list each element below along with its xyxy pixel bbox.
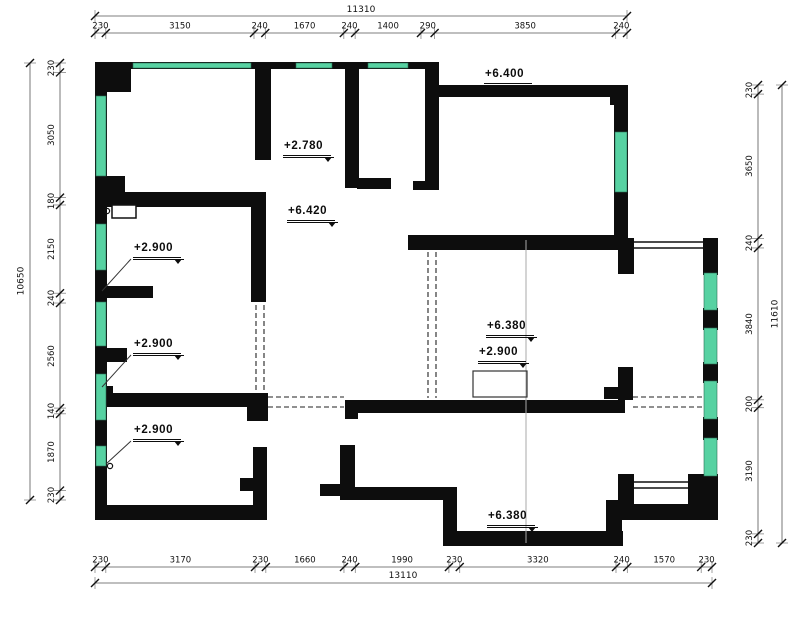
wall-segment (618, 504, 718, 520)
platform-outline (473, 371, 527, 397)
wall-segment (703, 308, 718, 330)
wall-segment (408, 235, 627, 250)
wall-segment (430, 85, 628, 97)
window-segment (704, 328, 717, 364)
leader-line (106, 441, 131, 464)
wall-segment (606, 500, 622, 533)
wall-segment (604, 387, 619, 399)
wall-segment (253, 447, 267, 520)
wall-segment (251, 192, 266, 302)
dimension-lines-group (24, 10, 788, 589)
wall-segment (345, 407, 358, 419)
floor-plan: 11310 13110 10650 11610 2303150240167024… (0, 0, 800, 622)
wall-segment (443, 487, 457, 537)
window-segment (96, 224, 106, 270)
wall-segment (345, 62, 359, 188)
wall-segment (443, 531, 623, 546)
wall-segment (357, 178, 391, 189)
wall-segment (95, 393, 268, 407)
floor-plan-canvas (0, 0, 800, 622)
wall-segment (703, 362, 718, 383)
wall-segment (95, 286, 153, 298)
wall-segment (95, 505, 267, 520)
fixture-circle (107, 463, 112, 468)
wall-segment (703, 238, 718, 275)
window-segment (96, 374, 106, 420)
wall-segment (688, 474, 718, 506)
wall-segment (425, 62, 439, 190)
window-segment (704, 381, 717, 419)
wall-segment (703, 417, 718, 440)
wall-segment (340, 487, 456, 500)
window-segment (704, 438, 717, 476)
wall-segment (255, 62, 271, 160)
fixture-box (112, 205, 136, 218)
wall-segment (413, 181, 425, 190)
window-segment (615, 132, 627, 192)
wall-segment (618, 238, 634, 274)
wall-segment (240, 478, 253, 491)
wall-segment (345, 400, 625, 413)
wall-segment (95, 348, 127, 362)
window-segment (368, 63, 408, 68)
window-segment (133, 63, 251, 68)
window-segment (96, 96, 106, 176)
window-segment (296, 63, 332, 68)
window-segment (704, 273, 717, 310)
wall-segment (618, 367, 633, 400)
window-segment (96, 302, 106, 346)
window-segment (96, 446, 106, 466)
wall-segment (320, 484, 342, 496)
wall-segment (247, 393, 268, 421)
